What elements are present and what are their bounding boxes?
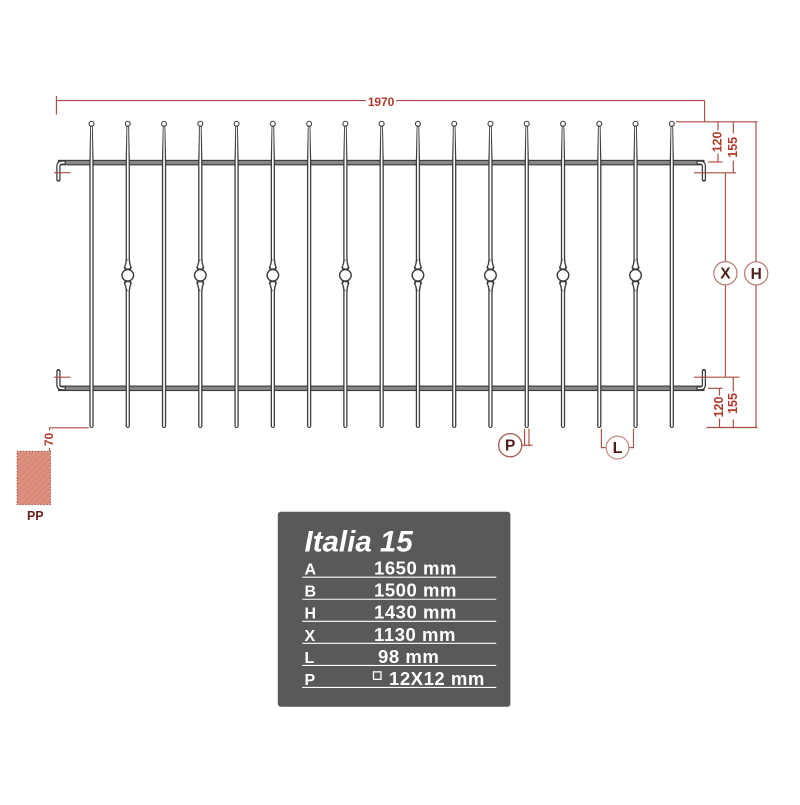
svg-text:A: A bbox=[305, 562, 317, 579]
svg-text:X: X bbox=[720, 266, 731, 283]
svg-text:155: 155 bbox=[726, 393, 740, 414]
svg-text:H: H bbox=[305, 606, 317, 623]
svg-text:PP: PP bbox=[27, 509, 44, 523]
svg-text:12X12 mm: 12X12 mm bbox=[389, 668, 485, 689]
svg-text:Italia 15: Italia 15 bbox=[305, 526, 414, 559]
svg-text:120: 120 bbox=[712, 397, 726, 418]
svg-text:1130 mm: 1130 mm bbox=[374, 624, 456, 645]
svg-text:X: X bbox=[305, 628, 316, 645]
svg-text:155: 155 bbox=[726, 137, 740, 158]
svg-text:P: P bbox=[305, 672, 316, 689]
svg-text:98 mm: 98 mm bbox=[378, 646, 439, 667]
svg-text:1650 mm: 1650 mm bbox=[374, 558, 457, 579]
svg-text:1430 mm: 1430 mm bbox=[374, 602, 457, 623]
svg-text:1970: 1970 bbox=[368, 95, 395, 109]
svg-text:70: 70 bbox=[42, 433, 56, 447]
svg-text:120: 120 bbox=[711, 132, 725, 153]
svg-text:L: L bbox=[305, 650, 315, 667]
svg-text:L: L bbox=[613, 440, 623, 457]
svg-text:H: H bbox=[751, 266, 762, 283]
svg-text:1500 mm: 1500 mm bbox=[374, 580, 457, 601]
svg-text:B: B bbox=[305, 584, 317, 601]
svg-text:P: P bbox=[505, 438, 515, 455]
